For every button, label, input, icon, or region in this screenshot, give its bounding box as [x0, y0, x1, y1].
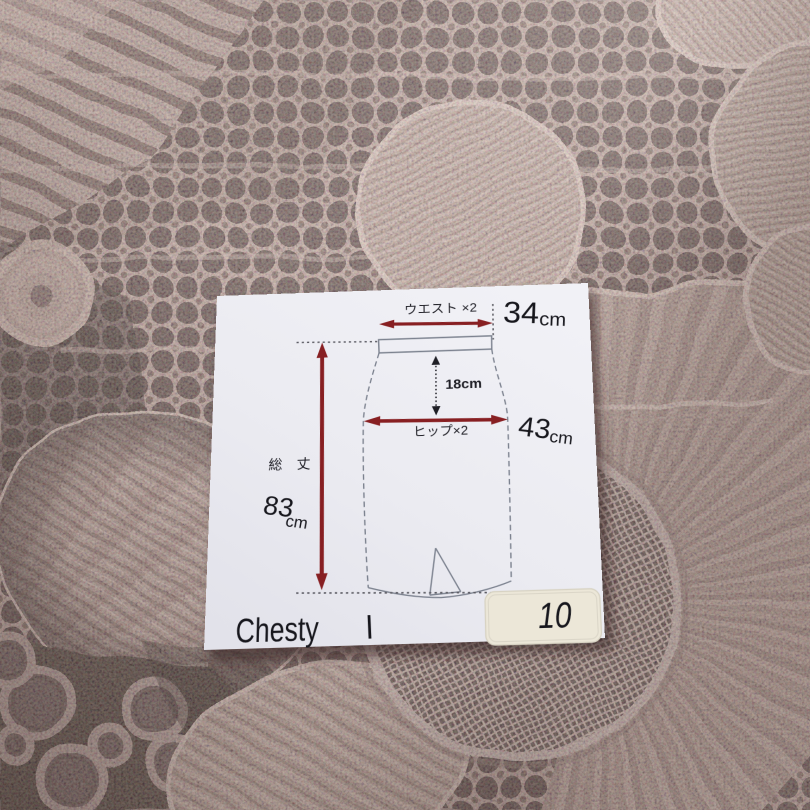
svg-text:総 丈: 総 丈: [268, 456, 316, 473]
svg-text:43: 43: [517, 410, 553, 445]
svg-text:34: 34: [502, 296, 539, 330]
svg-text:ウエスト ×2: ウエスト ×2: [404, 300, 477, 317]
svg-text:ヒップ×2: ヒップ×2: [413, 423, 468, 440]
svg-text:18cm: 18cm: [445, 375, 482, 392]
svg-text:cm: cm: [548, 428, 574, 449]
svg-text:10: 10: [537, 595, 572, 637]
svg-text:Chesty: Chesty: [235, 609, 320, 651]
svg-text:cm: cm: [539, 308, 567, 330]
svg-text:cm: cm: [284, 513, 309, 533]
